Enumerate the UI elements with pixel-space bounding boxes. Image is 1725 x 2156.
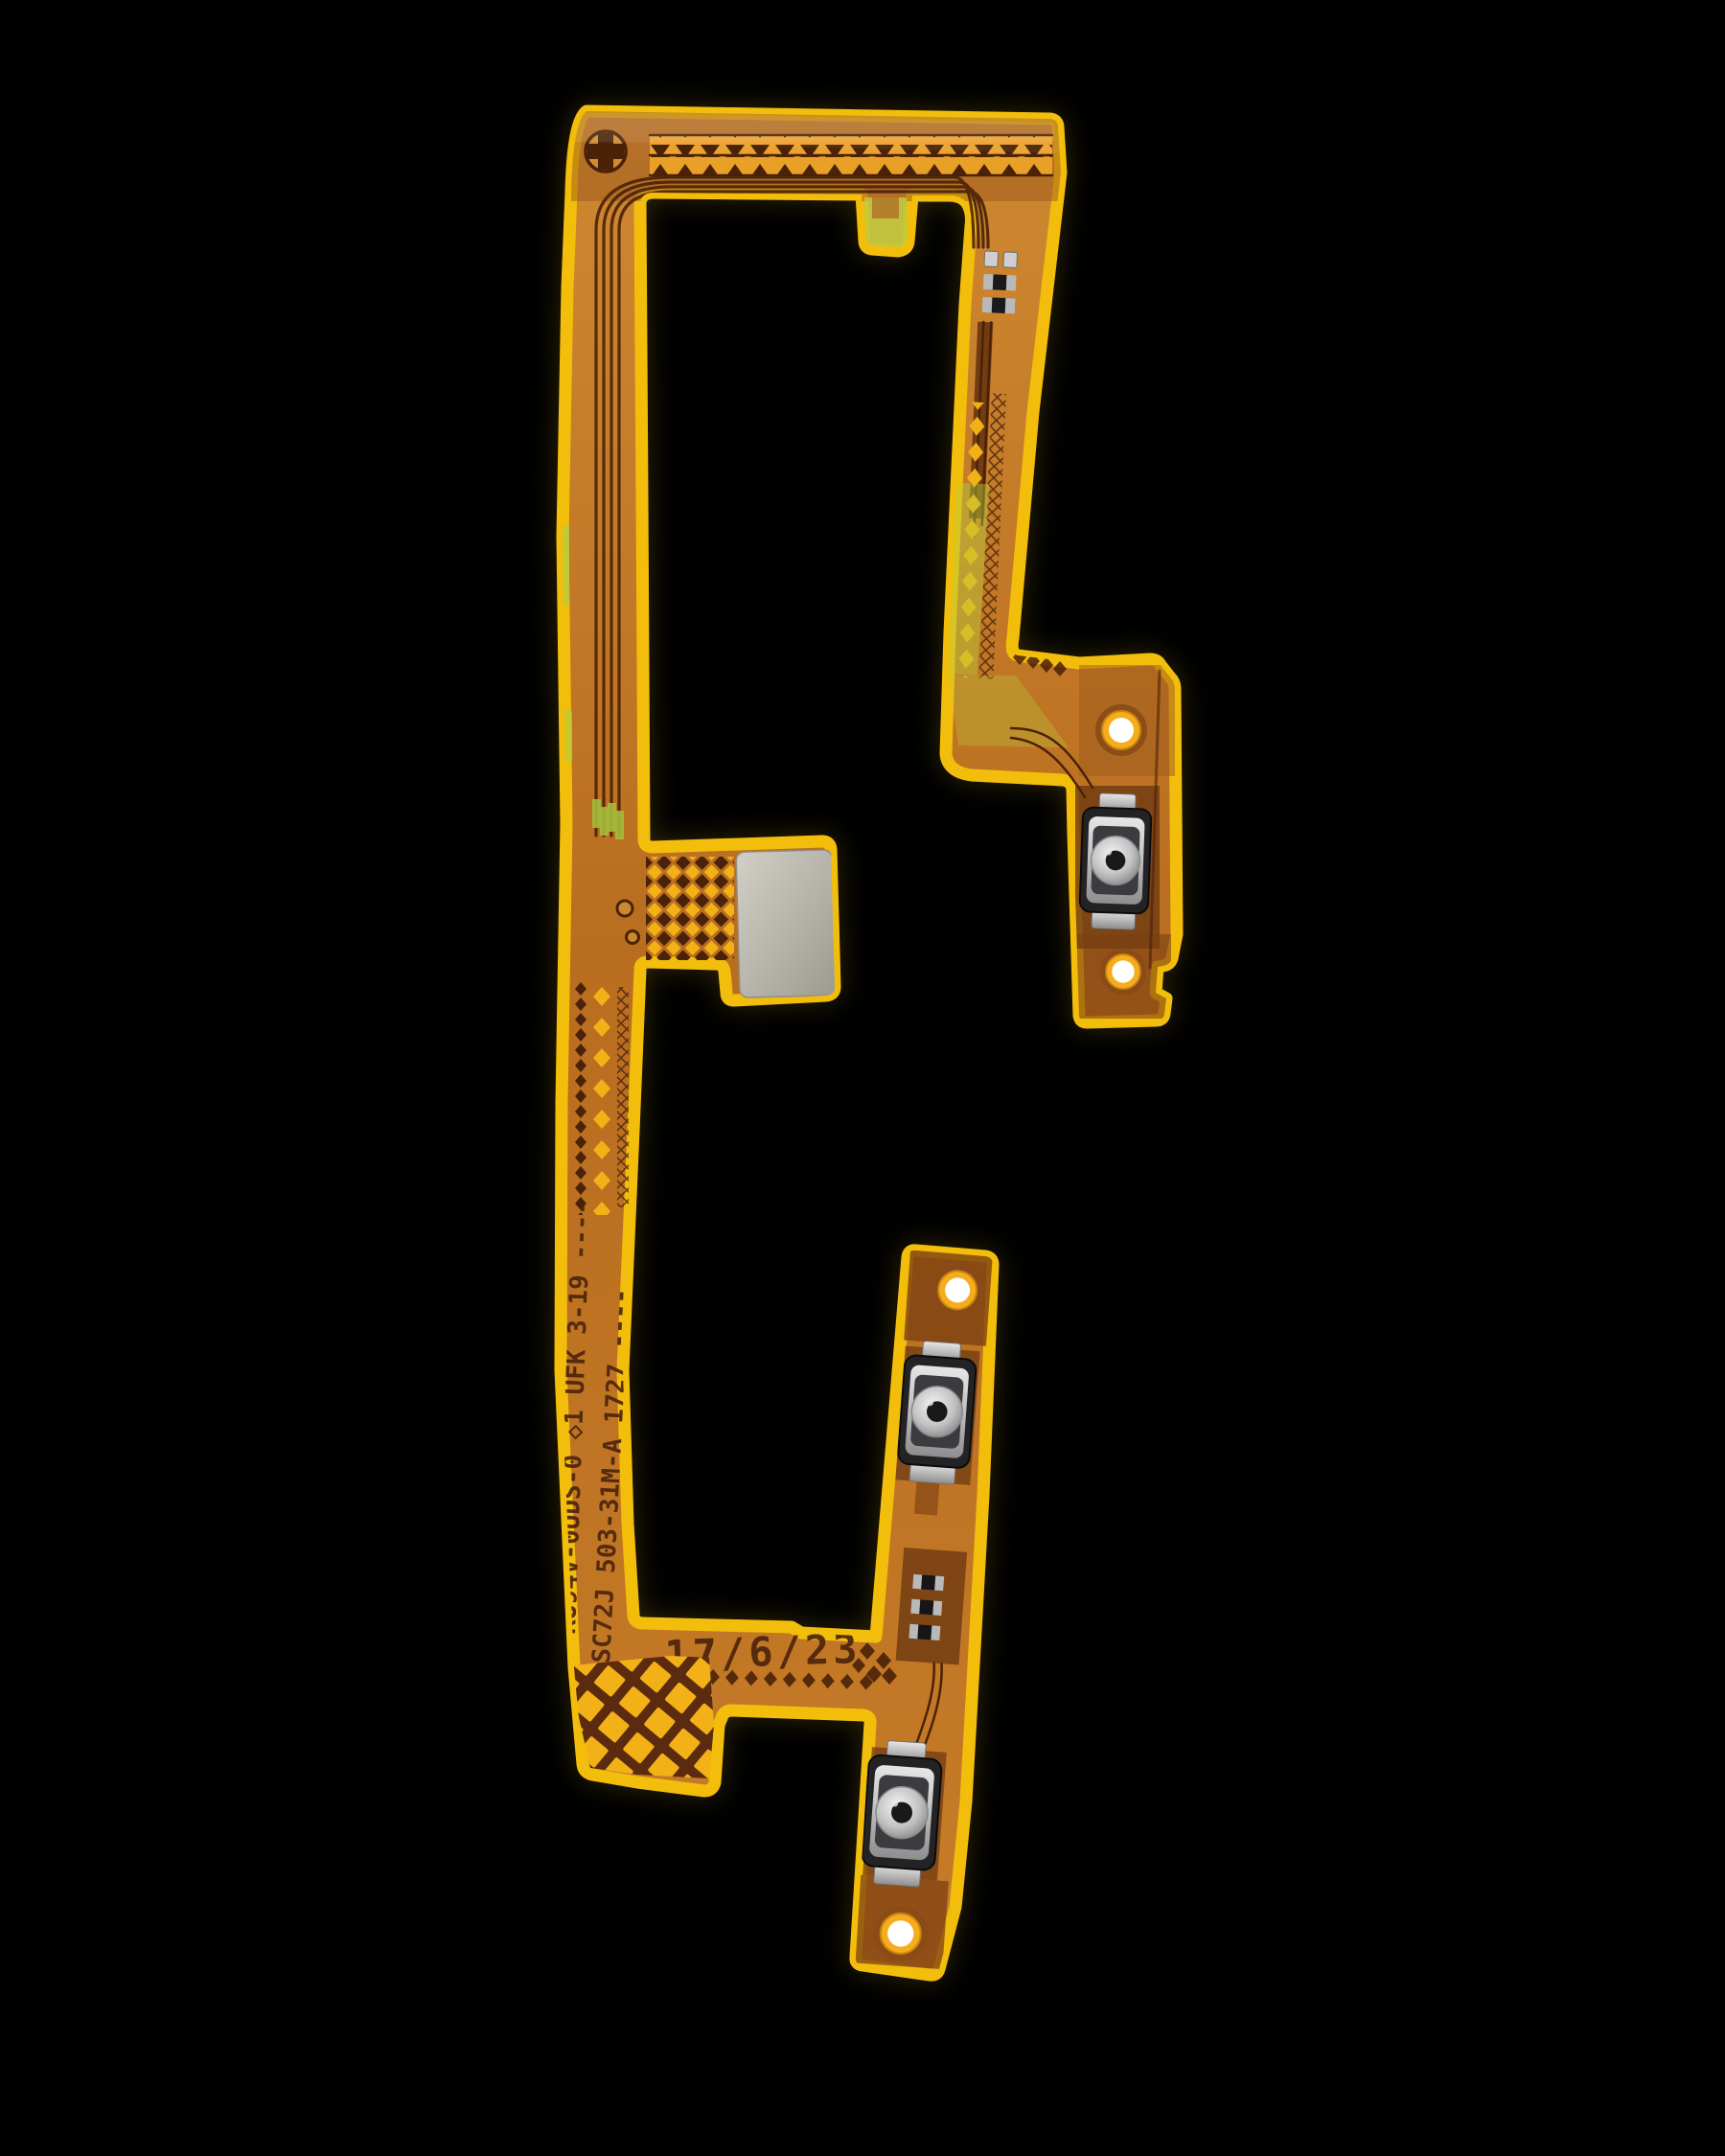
flex-cable: RU94V-0UDS-0 ◇1 UFK 3-19 ---- SC72J 503-… xyxy=(553,107,1177,1975)
flex-cable-svg: RU94V-0UDS-0 ◇1 UFK 3-19 ---- SC72J 503-… xyxy=(0,0,1725,2156)
power-dome-switch xyxy=(1079,792,1152,929)
crosshatch-column-left xyxy=(617,987,629,1207)
power-screw-hole-top xyxy=(1095,704,1147,756)
via-diamond-column-left xyxy=(573,981,615,1215)
signal-traces xyxy=(596,177,988,836)
volume-down-dome-switch xyxy=(861,1739,944,1888)
via-cluster xyxy=(646,857,734,960)
smd-components-volume xyxy=(908,1574,944,1640)
coverlay-tab xyxy=(864,197,908,247)
volume-up-dome-switch xyxy=(896,1340,977,1485)
flex-cable-product-photo: RU94V-0UDS-0 ◇1 UFK 3-19 ---- SC72J 503-… xyxy=(0,0,1725,2156)
mesh-row-2 xyxy=(650,155,1052,175)
waffle-via-grid xyxy=(573,1656,714,1778)
power-screw-hole-bottom xyxy=(1100,949,1147,996)
stiffener-pad xyxy=(736,850,836,998)
volume-mid-tab xyxy=(914,1481,939,1516)
